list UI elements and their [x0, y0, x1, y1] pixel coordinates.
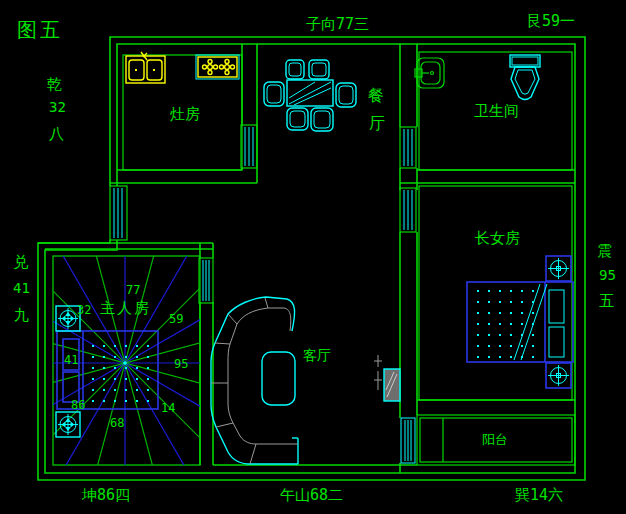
- pillow: [549, 327, 564, 357]
- floor-plan-canvas: 77 32 59 41 95 86 14 68 图五 子向77三 艮59一 乾 …: [0, 0, 626, 514]
- compass-label-w-num: 41: [13, 280, 30, 296]
- window-kitchen-dining: [241, 125, 257, 168]
- compass-label-e-num: 95: [599, 267, 616, 283]
- room-label-master: 主人房: [100, 299, 151, 317]
- room-labels: 灶房 餐 厅 卫生间 长女房 主人房 客厅 阳台: [100, 86, 520, 447]
- window-dining-bathroom: [400, 127, 416, 168]
- bedside-table-north: [546, 256, 571, 281]
- page-title: 图五: [17, 18, 63, 42]
- room-label-dining-1: 餐: [368, 86, 384, 105]
- star-number-n: 77: [126, 283, 140, 297]
- room-label-living: 客厅: [303, 347, 331, 363]
- window-master-east: [199, 258, 213, 303]
- compass-label-s: 午山68二: [280, 486, 343, 504]
- dining-chair: [311, 108, 333, 131]
- window-hall-west: [110, 186, 127, 240]
- star-number-sw: 86: [71, 398, 85, 412]
- coffee-table: [262, 352, 295, 405]
- compass-label-e-rank: 五: [599, 292, 614, 310]
- floor-plan-drawing: 77 32 59 41 95 86 14 68 图五 子向77三 艮59一 乾 …: [0, 0, 626, 514]
- star-center: [123, 361, 127, 365]
- dining-chair: [287, 108, 308, 130]
- compass-box-south: [56, 412, 80, 437]
- room-label-balcony: 阳台: [482, 432, 508, 447]
- daughter-bed: [467, 282, 573, 362]
- star-number-e: 95: [174, 357, 188, 371]
- compass-label-nw-rank: 八: [49, 125, 64, 143]
- kitchen-sink: [126, 52, 165, 83]
- star-number-se: 14: [161, 401, 175, 415]
- burner-icon: [220, 60, 235, 75]
- window-balcony-west: [401, 418, 415, 463]
- toilet: [510, 55, 540, 100]
- sofa: [211, 297, 298, 464]
- dining-chair: [309, 60, 329, 79]
- mattress-dots: [471, 286, 541, 358]
- compass-label-se: 巽14六: [515, 486, 563, 504]
- compass-labels: 子向77三 艮59一 乾 32 八 兑 41 九 震 95 五 坤86四 午山6…: [13, 12, 616, 504]
- compass-label-w-rank: 九: [14, 306, 29, 324]
- room-label-eldest-daughter: 长女房: [475, 229, 520, 247]
- star-number-w: 41: [64, 353, 78, 367]
- pillow: [549, 290, 564, 323]
- compass-label-n: 子向77三: [306, 15, 369, 33]
- burner-icon: [203, 60, 218, 75]
- bedside-table-south: [546, 363, 571, 388]
- star-number-s: 68: [110, 416, 124, 430]
- dining-chair: [286, 60, 304, 79]
- compass-label-ne: 艮59一: [527, 12, 575, 30]
- star-number-nw: 32: [77, 303, 91, 317]
- compass-label-sw: 坤86四: [81, 486, 130, 504]
- compass-label-nw-name: 乾: [47, 75, 62, 93]
- compass-label-nw-num: 32: [49, 99, 66, 115]
- dining-chair: [264, 82, 284, 106]
- dining-set: [264, 60, 356, 131]
- mattress-dots: [86, 336, 154, 406]
- window-living-daughter: [400, 188, 416, 232]
- compass-label-e-name: 震: [597, 242, 612, 260]
- compass-label-w-name: 兑: [13, 253, 29, 271]
- room-label-dining-2: 厅: [369, 114, 385, 133]
- room-label-bathroom: 卫生间: [474, 102, 519, 120]
- windows: [110, 125, 416, 463]
- dining-chair: [336, 83, 356, 107]
- stove: [196, 55, 239, 79]
- room-label-kitchen: 灶房: [170, 105, 200, 123]
- star-number-ne: 59: [169, 312, 183, 326]
- tv: [374, 355, 400, 401]
